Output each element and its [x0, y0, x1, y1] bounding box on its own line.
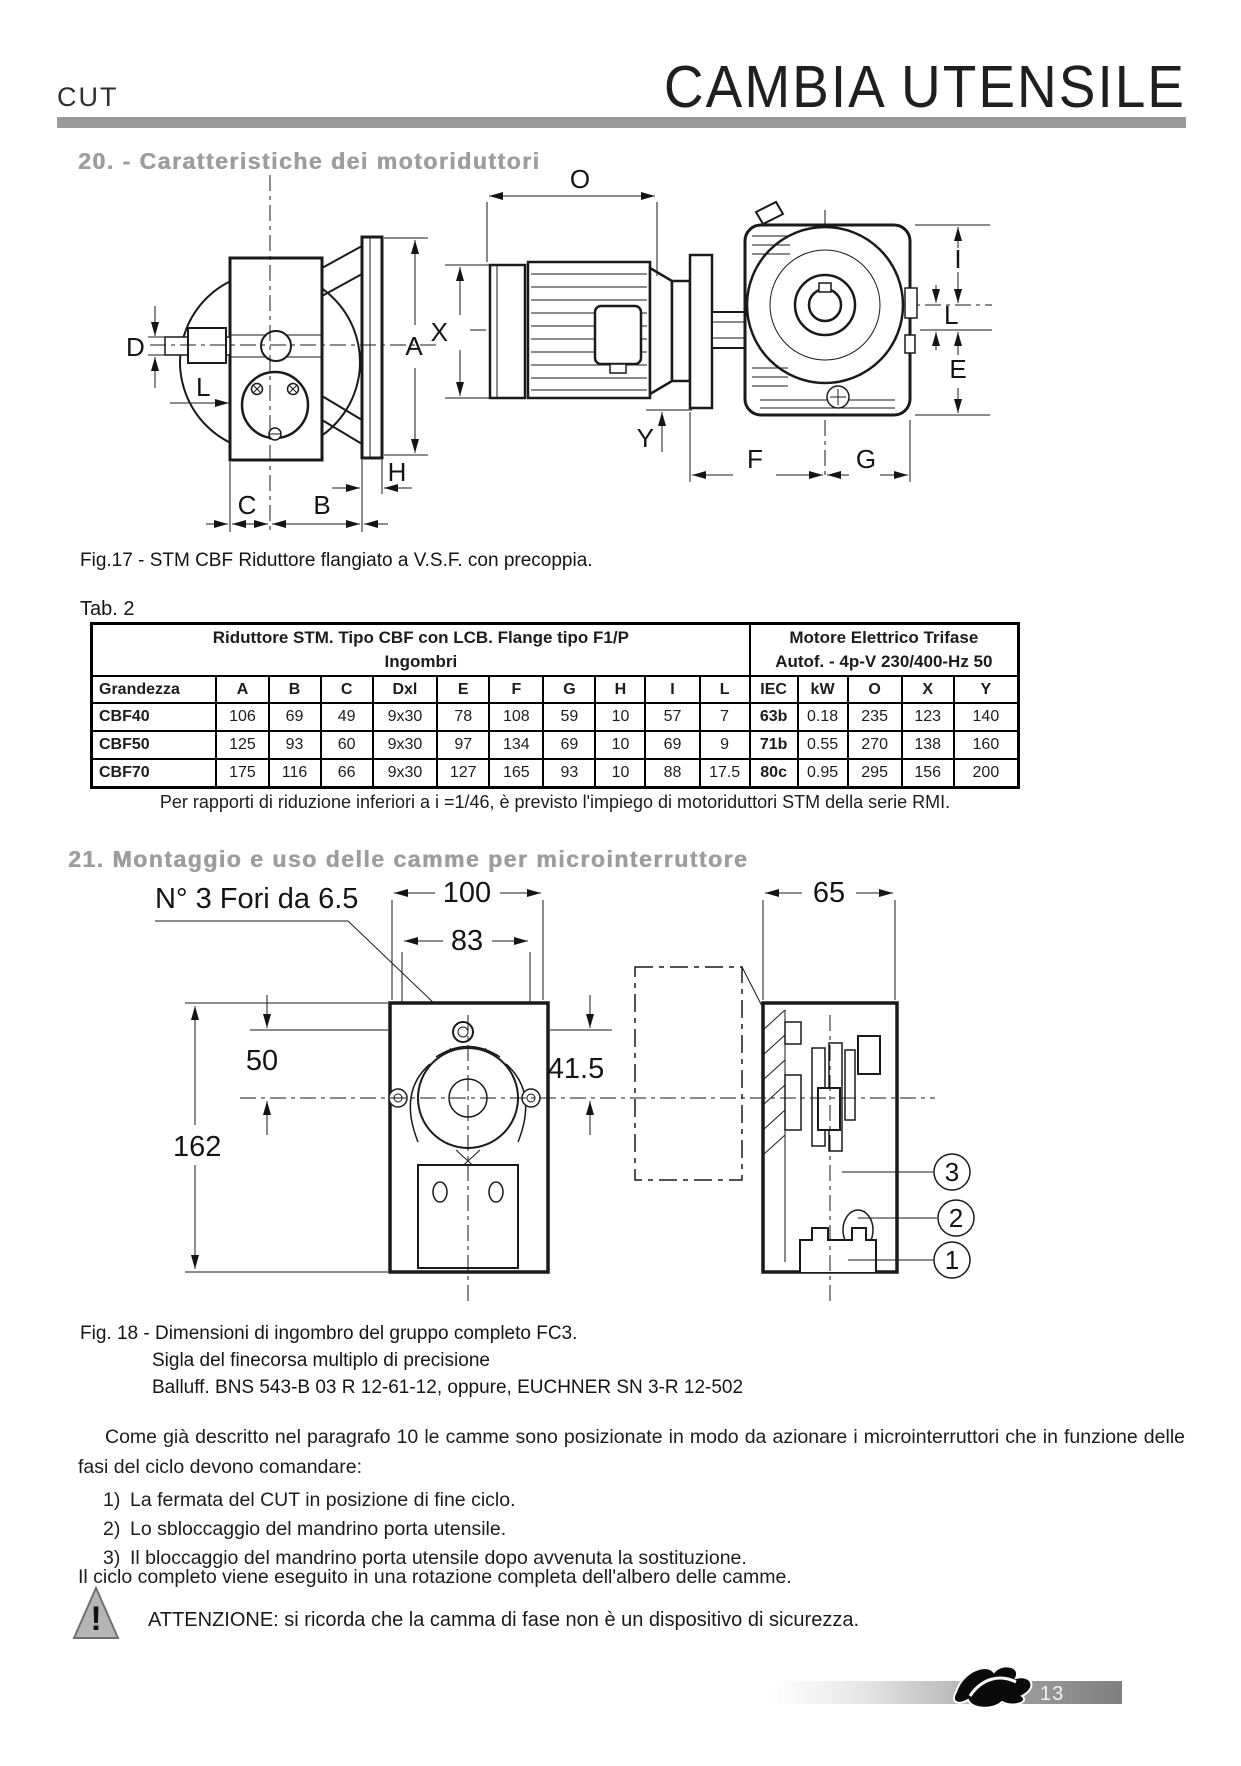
table-cell: 71b — [750, 731, 798, 759]
dim-label-I: I — [954, 244, 961, 274]
list-item-text: Lo sbloccaggio del mandrino porta utensi… — [130, 1515, 506, 1544]
dim-50: 50 — [246, 1045, 278, 1077]
fig18-caption-line: Sigla del finecorsa multiplo di precisio… — [152, 1347, 743, 1374]
table-cell: 123 — [902, 703, 954, 731]
table-cell: 57 — [645, 703, 699, 731]
column-header: X — [902, 676, 954, 703]
table-cell: 0.55 — [798, 731, 848, 759]
table-cell: 9x30 — [373, 731, 438, 759]
dim-label-L: L — [196, 372, 210, 402]
fig18-caption: Fig. 18 - Dimensioni di ingombro del gru… — [80, 1320, 743, 1401]
warning-row: ! ATTENZIONE: si ricorda che la camma di… — [72, 1585, 859, 1641]
footer-logo-icon — [952, 1660, 1038, 1708]
fig17-caption: Fig.17 - STM CBF Riduttore flangiato a V… — [80, 550, 593, 572]
warning-exclamation: ! — [90, 1600, 101, 1638]
table-cell: 125 — [216, 731, 268, 759]
table-group-header-row: Riduttore STM. Tipo CBF con LCB. Flange … — [92, 624, 1019, 677]
table-cell: 106 — [216, 703, 268, 731]
table-cell: 270 — [848, 731, 902, 759]
table-cell: 63b — [750, 703, 798, 731]
table-cell: 10 — [595, 731, 645, 759]
fig17-drawing: D L A H C B — [90, 168, 1130, 540]
table-cell: 69 — [543, 731, 595, 759]
column-header: H — [595, 676, 645, 703]
table-label: Tab. 2 — [80, 598, 134, 621]
page-title: CAMBIA UTENSILE — [664, 52, 1186, 121]
callout-2: 2 — [949, 1203, 963, 1233]
column-header: C — [321, 676, 373, 703]
doc-code: CUT — [57, 82, 119, 113]
table-cell: 0.18 — [798, 703, 848, 731]
dim-label-G: G — [856, 444, 876, 474]
dim-label-X: X — [431, 317, 448, 347]
table-cell: 134 — [489, 731, 543, 759]
table-cell: 108 — [489, 703, 543, 731]
group-header-line: Riduttore STM. Tipo CBF con LCB. Flange … — [94, 626, 748, 650]
column-header: A — [216, 676, 268, 703]
column-header: E — [437, 676, 489, 703]
group-header-line: Ingombri — [94, 650, 748, 674]
dim-label-A: A — [405, 331, 423, 361]
table-row: CBF50 125 93 60 9x30 97 134 69 10 69 9 7… — [92, 731, 1019, 759]
warning-text: ATTENZIONE: si ricorda che la camma di f… — [148, 1595, 859, 1632]
column-header: F — [489, 676, 543, 703]
group-header-line: Motore Elettrico Trifase — [752, 626, 1016, 650]
column-header: I — [645, 676, 699, 703]
dim-label-H: H — [388, 457, 407, 487]
table-cell: 60 — [321, 731, 373, 759]
dim-label-F: F — [747, 444, 763, 474]
column-header: Y — [954, 676, 1019, 703]
list-item-number: 1) — [103, 1486, 130, 1515]
gearbox-dimensions-table: Riduttore STM. Tipo CBF con LCB. Flange … — [90, 622, 1020, 789]
dim-label-Y: Y — [637, 423, 654, 453]
limit-switch-side-view — [635, 967, 897, 1302]
table-cell: 7 — [700, 703, 750, 731]
holes-note: N° 3 Fori da 6.5 — [155, 883, 358, 915]
column-header: Grandezza — [92, 676, 217, 703]
fig18-caption-line: Balluff. BNS 543-B 03 R 12-61-12, oppure… — [152, 1374, 743, 1401]
table-cell: 93 — [269, 731, 321, 759]
warning-triangle-icon: ! — [72, 1585, 120, 1641]
group-header-line: Autof. - 4p-V 230/400-Hz 50 — [752, 650, 1016, 674]
header-rule — [57, 117, 1186, 128]
fig18-drawing: N° 3 Fori da 6.5 100 83 65 — [90, 770, 1130, 1310]
cycle-list: 1) La fermata del CUT in posizione di fi… — [103, 1486, 747, 1573]
table-cell: 140 — [954, 703, 1019, 731]
fig18-caption-line: Fig. 18 - Dimensioni di ingombro del gru… — [80, 1320, 743, 1347]
table-column-header-row: Grandezza A B C Dxl E F G H I L IEC kW O… — [92, 676, 1019, 703]
dim-83: 83 — [451, 925, 483, 957]
table-cell: CBF40 — [92, 703, 217, 731]
dim-label-D: D — [126, 332, 145, 362]
callout-3: 3 — [945, 1157, 959, 1187]
dim-label-O: O — [570, 168, 590, 194]
column-header: IEC — [750, 676, 798, 703]
limit-switch-front-view — [185, 1003, 612, 1272]
group-header-motore: Motore Elettrico Trifase Autof. - 4p-V 2… — [750, 624, 1019, 677]
table-cell: 78 — [437, 703, 489, 731]
column-header: kW — [798, 676, 848, 703]
table-cell: 49 — [321, 703, 373, 731]
table-cell: 59 — [543, 703, 595, 731]
table-cell: 69 — [645, 731, 699, 759]
table-cell: 9x30 — [373, 703, 438, 731]
column-header: L — [700, 676, 750, 703]
dim-100: 100 — [443, 877, 491, 909]
dim-label-C: C — [238, 490, 257, 520]
table-cell: 9 — [700, 731, 750, 759]
group-header-riduttore: Riduttore STM. Tipo CBF con LCB. Flange … — [92, 624, 750, 677]
table-cell: 235 — [848, 703, 902, 731]
list-item: 2) Lo sbloccaggio del mandrino porta ute… — [103, 1515, 747, 1544]
motor-gearbox-side-view — [470, 202, 992, 480]
column-header: O — [848, 676, 902, 703]
body-paragraph: Come già descritto nel paragrafo 10 le c… — [78, 1422, 1185, 1482]
dim-41-5: 41.5 — [548, 1053, 604, 1085]
table-cell: 10 — [595, 703, 645, 731]
list-item: 1) La fermata del CUT in posizione di fi… — [103, 1486, 747, 1515]
dim-162: 162 — [173, 1131, 221, 1163]
dim-label-B: B — [313, 490, 330, 520]
column-header: Dxl — [373, 676, 438, 703]
dim-label-E: E — [949, 354, 966, 384]
dim-65: 65 — [813, 877, 845, 909]
page-number: 13 — [1040, 1683, 1064, 1706]
table-cell: 138 — [902, 731, 954, 759]
footer-bar — [770, 1681, 1122, 1704]
table-row: CBF40 106 69 49 9x30 78 108 59 10 57 7 6… — [92, 703, 1019, 731]
callout-1: 1 — [945, 1245, 959, 1275]
list-item-text: La fermata del CUT in posizione di fine … — [130, 1486, 516, 1515]
document-page: { "header": { "doc_code": "CUT", "title"… — [0, 0, 1241, 1766]
table-cell: 69 — [269, 703, 321, 731]
table-cell: 160 — [954, 731, 1019, 759]
table-cell: 97 — [437, 731, 489, 759]
column-header: G — [543, 676, 595, 703]
table-cell: CBF50 — [92, 731, 217, 759]
column-header: B — [269, 676, 321, 703]
dim-label-L2: L — [944, 300, 958, 330]
list-item-number: 2) — [103, 1515, 130, 1544]
